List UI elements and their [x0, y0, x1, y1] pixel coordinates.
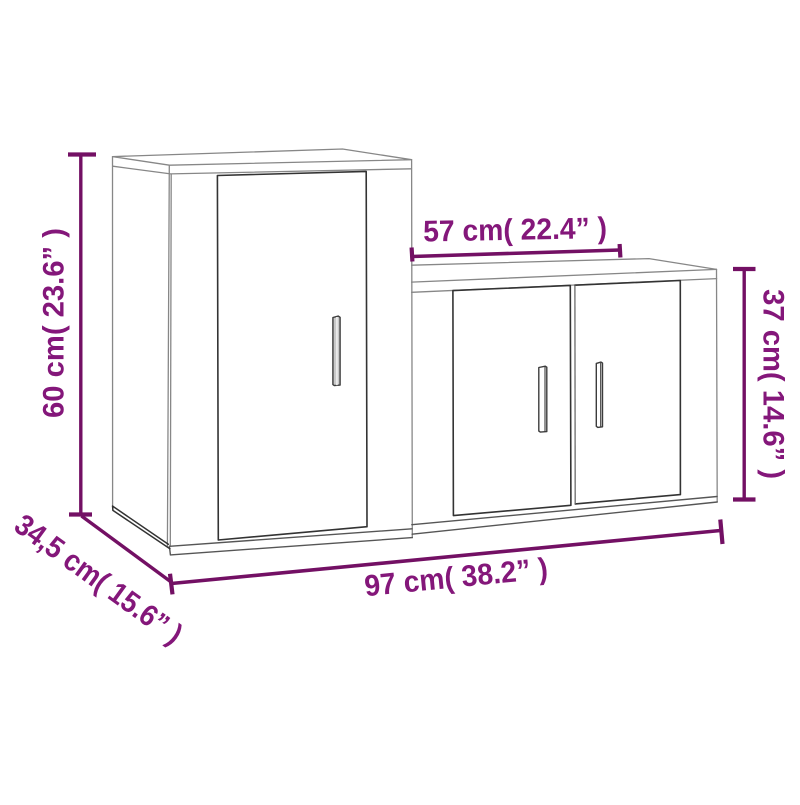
- svg-text:60 cm( 23.6” ): 60 cm( 23.6” ): [38, 228, 71, 418]
- svg-text:57 cm( 22.4” ): 57 cm( 22.4” ): [423, 212, 607, 249]
- svg-text:37 cm( 14.6” ): 37 cm( 14.6” ): [757, 289, 790, 479]
